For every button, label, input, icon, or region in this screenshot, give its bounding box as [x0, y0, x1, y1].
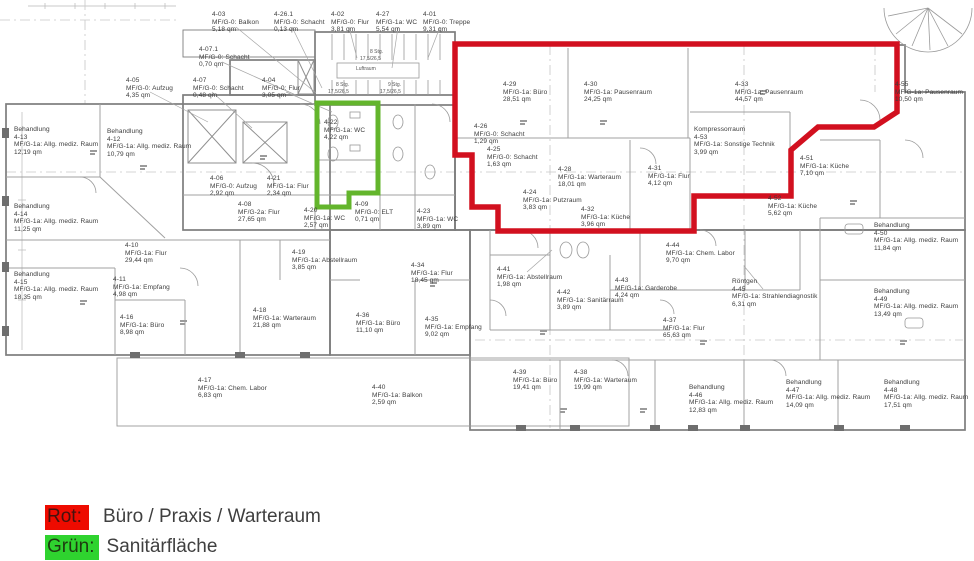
floor-plan-labels: 4-03MF/G-0: Balkon5,18 qm4-26.1MF/G-0: S…: [0, 0, 974, 495]
room-label-4-29: 4-29MF/G-1a: Büro28,51 qm: [503, 81, 547, 104]
room-label-4-21: 4-21MF/G-1a: Flur2,34 qm: [267, 175, 309, 198]
room-label-4-07: 4-07MF/G-0: Schacht0,48 qm: [193, 77, 244, 100]
floor-plan-page: 4-03MF/G-0: Balkon5,18 qm4-26.1MF/G-0: S…: [0, 0, 974, 561]
floor-plan: 4-03MF/G-0: Balkon5,18 qm4-26.1MF/G-0: S…: [0, 0, 974, 495]
room-label-4-11: 4-11MF/G-1a: Empfang4,98 qm: [113, 276, 170, 299]
room-label-4-37: 4-37MF/G-1a: Flur65,63 qm: [663, 317, 705, 340]
plan-annotation: 17,5/26,5: [328, 89, 349, 95]
plan-annotation: 17,5/26,5: [360, 56, 381, 62]
room-label-4-18: 4-18MF/G-1a: Warteraum21,88 qm: [253, 307, 316, 330]
legend-swatch-rot: Rot:: [45, 505, 89, 530]
room-label-4-04: 4-04MF/G-0: Flur3,05 qm: [262, 77, 300, 100]
legend: Rot: Büro / Praxis / Warteraum Grün: San…: [45, 504, 321, 561]
room-label-4-48: Behandlung4-48MF/G-1a: Allg. mediz. Raum…: [884, 379, 968, 409]
room-label-4-34: 4-34MF/G-1a: Flur18,45 qm: [411, 262, 453, 285]
room-label-4-30: 4-30MF/G-1a: Pausenraum24,25 qm: [584, 81, 652, 104]
room-label-4-14: Behandlung4-14MF/G-1a: Allg. mediz. Raum…: [14, 203, 98, 233]
room-label-4-10: 4-10MF/G-1a: Flur29,44 qm: [125, 242, 167, 265]
room-label-4-03: 4-03MF/G-0: Balkon5,18 qm: [212, 11, 259, 34]
room-label-4-38: 4-38MF/G-1a: Warteraum19,99 qm: [574, 369, 637, 392]
room-label-4-13: Behandlung4-13MF/G-1a: Allg. mediz. Raum…: [14, 126, 98, 156]
room-label-4-32: 4-32MF/G-1a: Küche3,96 qm: [581, 206, 630, 229]
room-label-4-09: 4-09MF/G-0: ELT0,71 qm: [355, 201, 393, 224]
room-label-4-27: 4-27MF/G-1a: WC5,54 qm: [376, 11, 417, 34]
room-label-4-25: 4-25MF/G-0: Schacht1,63 qm: [487, 146, 538, 169]
room-label-4-24: 4-24MF/G-1a: Putzraum3,83 qm: [523, 189, 582, 212]
legend-text-gruen: Sanitärfläche: [107, 536, 218, 558]
room-label-4-01: 4-01MF/G-0: Treppe9,31 qm: [423, 11, 470, 34]
room-label-4-05: 4-05MF/G-0: Aufzug4,35 qm: [126, 77, 173, 100]
room-label-4-23: 4-23MF/G-1a: WC3,89 qm: [417, 208, 458, 231]
room-label-4-06: 4-06MF/G-0: Aufzug2,92 qm: [210, 175, 257, 198]
room-label-4-41: 4-41MF/G-1a: Abstellraum1,98 qm: [497, 266, 562, 289]
plan-annotation: 9 Stg.: [388, 82, 401, 88]
room-label-4-26.1: 4-26.1MF/G-0: Schacht0,13 qm: [274, 11, 325, 34]
room-label-4-51: 4-51MF/G-1a: Küche7,10 qm: [800, 155, 849, 178]
room-label-4-16: 4-16MF/G-1a: Büro8,98 qm: [120, 314, 164, 337]
room-label-4-28: 4-28MF/G-1a: Warteraum18,01 qm: [558, 166, 621, 189]
room-label-4-47: Behandlung4-47MF/G-1a: Allg. mediz. Raum…: [786, 379, 870, 409]
room-label-4-31: 4-31MF/G-1a: Flur4,12 qm: [648, 165, 690, 188]
legend-row-rot: Rot: Büro / Praxis / Warteraum: [45, 504, 321, 530]
room-label-4-12: Behandlung4-12MF/G-1a: Allg. mediz. Raum…: [107, 128, 191, 158]
room-label-4-53: Kompressorraum4-53MF/G-1a: Sonstige Tech…: [694, 126, 775, 156]
plan-annotation: Luftraum: [356, 66, 376, 72]
room-label-4-15: Behandlung4-15MF/G-1a: Allg. mediz. Raum…: [14, 271, 98, 301]
room-label-4-33: 4-33MF/G-1a: Pausenraum44,57 qm: [735, 81, 803, 104]
room-label-4-40: 4-40MF/G-1a: Balkon2,59 qm: [372, 384, 423, 407]
plan-annotation: 8 Stg.: [336, 82, 349, 88]
legend-row-gruen: Grün: Sanitärfläche: [45, 534, 321, 560]
room-label-4-52: 4-52MF/G-1a: Küche5,62 qm: [768, 195, 817, 218]
room-label-4-43: 4-43MF/G-1a: Garderobe4,24 qm: [615, 277, 677, 300]
room-label-4-42: 4-42MF/G-1a: Sanitärraum3,89 qm: [557, 289, 624, 312]
room-label-4-20: 4-20MF/G-1a: WC2,57 qm: [304, 207, 345, 230]
room-label-4-19: 4-19MF/G-1a: Abstellraum3,85 qm: [292, 249, 357, 272]
room-label-4-02: 4-02MF/G-0: Flur3,81 qm: [331, 11, 369, 34]
room-label-4-49: Behandlung4-49MF/G-1a: Allg. mediz. Raum…: [874, 288, 958, 318]
plan-annotation: 17,5/26,5: [380, 89, 401, 95]
room-label-4-26: 4-26MF/G-0: Schacht1,29 qm: [474, 123, 525, 146]
room-label-4-55: 4-55MF/G-1a: Pausenraum10,50 qm: [895, 81, 963, 104]
room-label-4-39: 4-39MF/G-1a: Büro19,41 qm: [513, 369, 557, 392]
room-label-4-36: 4-36MF/G-1a: Büro11,10 qm: [356, 312, 400, 335]
room-label-4-07.1: 4-07.1MF/G-0: Schacht0,70 qm: [199, 46, 250, 69]
room-label-4-08: 4-08MF/G-2a: Flur27,65 qm: [238, 201, 280, 224]
plan-annotation: 8 Stg.: [370, 49, 383, 55]
legend-swatch-gruen: Grün:: [45, 535, 99, 560]
room-label-4-22: 4-22MF/G-1a: WC4,22 qm: [324, 119, 365, 142]
room-label-4-46: Behandlung4-46MF/G-1a: Allg. mediz. Raum…: [689, 384, 773, 414]
room-label-4-44: 4-44MF/G-1a: Chem. Labor9,70 qm: [666, 242, 735, 265]
legend-text-rot: Büro / Praxis / Warteraum: [103, 506, 321, 528]
room-label-4-17: 4-17MF/G-1a: Chem. Labor6,83 qm: [198, 377, 267, 400]
room-label-4-50: Behandlung4-50MF/G-1a: Allg. mediz. Raum…: [874, 222, 958, 252]
room-label-4-35: 4-35MF/G-1a: Empfang9,02 qm: [425, 316, 482, 339]
room-label-4-45: Röntgen4-45MF/G-1a: Strahlendiagnostik6,…: [732, 278, 817, 308]
